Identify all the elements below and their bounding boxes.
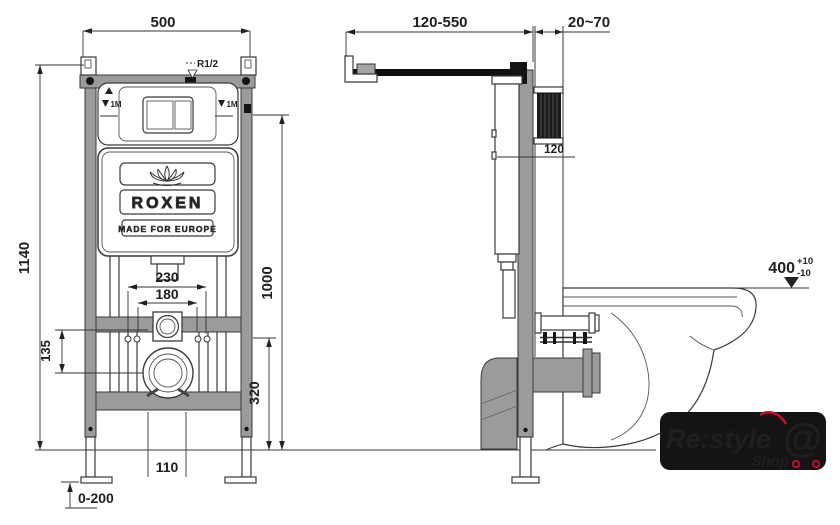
flush-button-plate	[143, 97, 193, 133]
screw-left	[86, 77, 94, 85]
leg-bolt-right	[244, 427, 248, 431]
technical-drawing-page: 1M 1M ROXEN MADE FOR EUROPE	[0, 0, 840, 525]
dim-120-label: 120	[544, 142, 564, 156]
leg-side	[520, 437, 531, 477]
foot-right	[225, 477, 256, 483]
flush-access-sleeve	[534, 87, 563, 144]
cistern: ROXEN MADE FOR EUROPE	[98, 148, 238, 256]
foot-left	[81, 477, 112, 483]
water-inlet-connector	[153, 312, 182, 341]
leg-left	[86, 437, 95, 477]
screw-right	[242, 77, 250, 85]
frame-left-rail	[85, 70, 96, 437]
flush-connection-pipe	[535, 313, 599, 333]
drain-pipe	[533, 358, 584, 392]
installation-frame-drawing: 1M 1M ROXEN MADE FOR EUROPE	[0, 0, 840, 525]
dim-320-label: 320	[246, 381, 262, 405]
drain-flange-cap	[592, 353, 600, 393]
dimension-foot-adjust: 0-200	[61, 482, 114, 508]
logo-brand-text: Re:style	[666, 424, 771, 454]
restyle-shop-logo: @ Re:style Shop	[660, 412, 826, 470]
dim-400-tol-plus: +10	[797, 256, 813, 267]
dimension-supply-120-550: 120-550	[346, 14, 533, 62]
foot-side	[512, 477, 539, 483]
dim-135-label: 135	[38, 340, 53, 362]
dim-20-70-label: 20~70	[568, 14, 610, 31]
brand-name: ROXEN	[132, 195, 204, 212]
dim-110-label: 110	[156, 459, 179, 475]
dimension-height-1140: 1140	[16, 65, 84, 450]
dimension-width-500: 500	[83, 14, 250, 57]
leg-bolt-side	[523, 428, 527, 432]
level-mark-right-label: 1M	[226, 100, 237, 109]
dimension-wall-20-70: 20~70	[535, 14, 610, 35]
slogan: MADE FOR EUROPE	[118, 224, 217, 234]
dimension-bowl-400: 400 +10 -10	[735, 256, 813, 288]
wall-bracket-left	[81, 57, 96, 75]
drain-elbow	[481, 358, 517, 449]
flush-pipe-flange	[151, 256, 184, 264]
dim-400-tol-minus: -10	[797, 268, 811, 279]
dim-180-label: 180	[155, 286, 179, 302]
dim-0-200-label: 0-200	[78, 490, 114, 506]
level-clip	[244, 104, 251, 113]
leg-right	[242, 437, 251, 477]
frame-strut-left	[128, 325, 137, 392]
dim-1000-label: 1000	[259, 266, 276, 299]
flush-panel	[98, 83, 238, 145]
frame-post-side	[518, 70, 533, 437]
drain-flange	[583, 349, 592, 397]
dim-120-550-label: 120-550	[412, 14, 467, 31]
drain-outlet	[143, 348, 193, 398]
dim-400-label: 400	[768, 260, 795, 277]
wall-bracket-right	[241, 57, 256, 75]
dim-1140-label: 1140	[16, 242, 33, 275]
thread-label: R1/2	[197, 59, 219, 70]
dimension-outlet-110: 110	[148, 412, 186, 477]
leg-bolt-left	[88, 427, 92, 431]
logo-sub-text: Shop	[751, 453, 789, 470]
frame-strut-right	[199, 325, 208, 392]
dim-500-label: 500	[150, 14, 175, 31]
dim-230-label: 230	[155, 269, 179, 285]
level-mark-left-label: 1M	[110, 100, 121, 109]
